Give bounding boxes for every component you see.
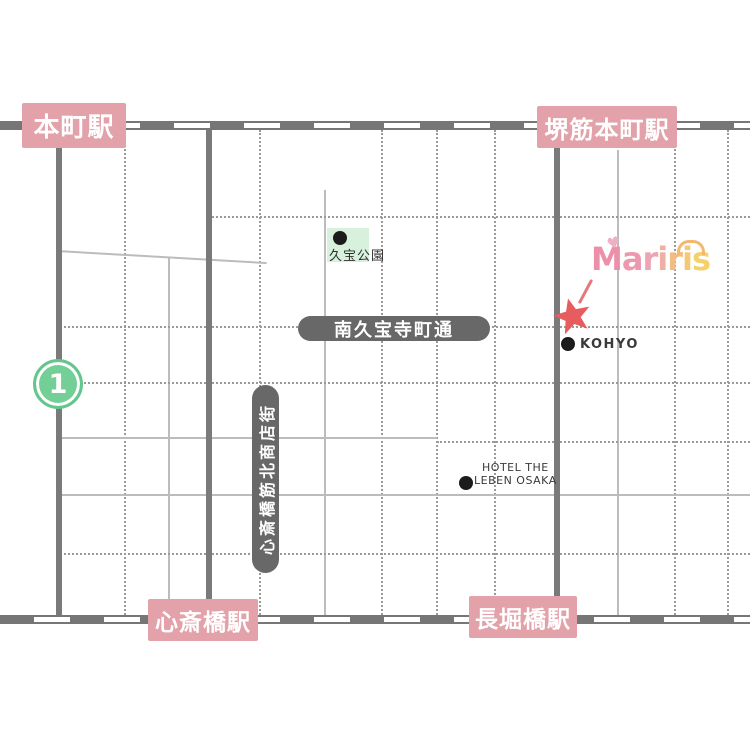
street-pill-shinsaibashi-suji: 心斎橋筋北商店街 (252, 385, 279, 573)
hotel-dot (459, 476, 473, 490)
logo-letter: r (642, 240, 657, 278)
exit-number-badge: 1 (33, 359, 83, 409)
access-map: 久宝公園 南久宝寺町通 心斎橋筋北商店街 KOHYO HOTEL THE LEB… (0, 0, 750, 750)
exit-number: 1 (49, 369, 68, 400)
park-dot (333, 231, 347, 245)
grid-line-h (57, 250, 267, 264)
grid-line-v (436, 130, 438, 615)
street-pill-minami-kyuhoji: 南久宝寺町通 (298, 316, 490, 341)
grid-line-h (209, 216, 750, 218)
railway-stripes (0, 617, 750, 622)
grid-line-h (57, 382, 750, 384)
grid-line-v (727, 130, 729, 615)
park-label: 久宝公園 (329, 245, 385, 264)
grid-line-v (324, 190, 326, 615)
road-sakaisuji (554, 121, 560, 624)
station-label-nagahoribashi: 長堀橋駅 (469, 596, 577, 638)
arc-icon (677, 240, 705, 255)
hotel-label-line2: LEBEN OSAKA (474, 474, 557, 487)
station-name: 心斎橋駅 (155, 603, 251, 637)
station-name: 堺筋本町駅 (545, 110, 670, 145)
hotel-label: HOTEL THE LEBEN OSAKA (474, 461, 557, 487)
grid-line-h (57, 494, 750, 496)
logo-letter: i (657, 240, 667, 278)
road-center (206, 121, 212, 624)
grid-line-v (494, 130, 496, 615)
star-marker-stick (578, 279, 593, 304)
station-label-shinsaibashi: 心斎橋駅 (148, 599, 258, 641)
kohyo-label: KOHYO (580, 337, 639, 352)
station-name: 本町駅 (33, 107, 114, 144)
kohyo-dot (561, 337, 575, 351)
station-label-sakaisuji-hommachi: 堺筋本町駅 (537, 106, 677, 148)
hotel-label-line1: HOTEL THE (474, 461, 557, 474)
logo-letter: a (622, 240, 643, 278)
shop-logo: Mariris ♥ (591, 240, 710, 278)
railway-bottom (0, 615, 750, 624)
street-label: 南久宝寺町通 (334, 316, 454, 342)
grid-line-v (381, 130, 383, 615)
grid-line-v (674, 130, 676, 615)
heart-icon: ♥ (605, 233, 622, 254)
street-label: 心斎橋筋北商店街 (254, 403, 278, 555)
station-label-hommachi: 本町駅 (22, 103, 126, 148)
grid-line-h (57, 437, 437, 439)
grid-line-v (124, 130, 126, 615)
station-name: 長堀橋駅 (475, 600, 571, 634)
grid-line-h (437, 441, 750, 443)
grid-line-h (57, 553, 750, 555)
